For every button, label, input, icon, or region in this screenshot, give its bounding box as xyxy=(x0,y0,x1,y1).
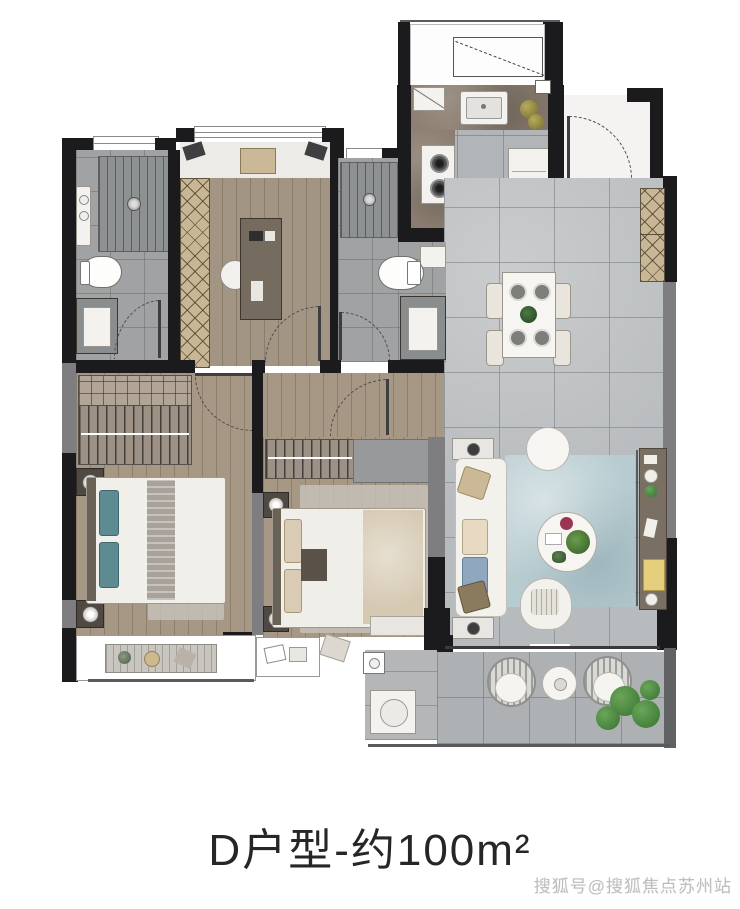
decor-icon xyxy=(645,593,658,606)
wall-segment xyxy=(252,493,263,635)
plate-icon xyxy=(509,283,527,301)
tablet-icon xyxy=(289,647,307,662)
flowers-icon xyxy=(560,517,573,530)
vanity-icon xyxy=(76,298,118,354)
drying-rack-icon xyxy=(453,37,543,77)
sofa-pillow-icon xyxy=(456,465,491,500)
plant-icon xyxy=(552,551,566,563)
decor-icon xyxy=(643,518,658,538)
paper-icon xyxy=(264,644,287,664)
wall-segment xyxy=(428,557,445,610)
laundry-sink-icon xyxy=(370,690,416,734)
window-line xyxy=(195,132,325,133)
round-table-icon xyxy=(542,666,577,701)
shower-drain-icon xyxy=(363,193,376,206)
bay-decor-strip xyxy=(105,644,217,673)
doormat-icon xyxy=(240,148,276,174)
study-door-icon xyxy=(318,306,321,361)
vanity-icon xyxy=(400,296,446,360)
floorplan-page: D户型-约100m² 搜狐号@搜狐焦点苏州站 xyxy=(0,0,740,909)
sliding-door-gap xyxy=(530,644,570,646)
vegetable-basket-icon xyxy=(528,114,544,130)
decor-icon xyxy=(644,469,658,483)
bed-runner-icon xyxy=(147,480,175,600)
pillow-icon xyxy=(99,490,119,536)
wall-segment xyxy=(252,373,263,495)
bathroom2-door-icon xyxy=(339,312,342,360)
books-icon xyxy=(643,559,665,591)
bedroom-door-icon xyxy=(195,373,252,376)
corner-cabinet-icon xyxy=(413,87,445,111)
laptop-icon xyxy=(249,231,263,241)
bay-window-icon xyxy=(256,637,320,677)
nightstand-icon xyxy=(76,600,104,628)
fridge-divider xyxy=(512,171,546,172)
tray-icon xyxy=(545,533,562,545)
centerpiece-icon xyxy=(520,306,537,323)
window-line xyxy=(94,143,158,144)
sink-icon xyxy=(460,91,508,125)
armchair-seat xyxy=(531,589,559,615)
armchair-icon xyxy=(520,578,572,630)
chair-seat xyxy=(495,673,527,703)
wall-segment xyxy=(155,138,176,150)
plant-icon xyxy=(645,485,657,497)
wall-segment xyxy=(62,363,76,453)
basin-icon xyxy=(79,195,89,205)
plate-icon xyxy=(509,329,527,347)
headboard-icon xyxy=(273,509,281,625)
shoe-cabinet-icon xyxy=(640,188,665,282)
balcony-outer-line xyxy=(368,744,670,747)
burner-icon xyxy=(430,154,449,173)
wall-segment xyxy=(650,100,663,180)
round-side-table-icon xyxy=(526,427,570,471)
desk-icon xyxy=(240,218,282,320)
plate-icon xyxy=(533,329,551,347)
pillow-icon xyxy=(99,542,119,588)
toilet-tank xyxy=(407,261,421,285)
faucet-icon xyxy=(481,104,486,109)
bath-counter-icon xyxy=(420,246,446,268)
wardrobe-hangers-icon xyxy=(78,405,192,465)
cabinet-shelf-line xyxy=(641,234,664,235)
plate-icon xyxy=(533,283,551,301)
wall-segment xyxy=(398,22,410,94)
plan-title: D户型-约100m² xyxy=(0,814,740,878)
bed-tray-icon xyxy=(301,549,327,581)
wall-segment xyxy=(62,360,195,373)
toilet-tank xyxy=(80,261,90,285)
sofa-icon xyxy=(455,458,507,617)
tray-icon xyxy=(144,651,160,667)
wall-segment xyxy=(388,360,444,373)
pillow-icon xyxy=(284,569,302,613)
entry-door-icon xyxy=(567,116,570,178)
plants-icon xyxy=(596,706,620,730)
wall-segment xyxy=(428,437,445,563)
shower-drain-icon xyxy=(127,197,141,211)
watermark: 搜狐号@搜狐焦点苏州站 xyxy=(534,872,732,897)
wall-segment xyxy=(397,85,411,230)
rattan-chair-icon xyxy=(487,657,536,707)
basin-icon xyxy=(380,699,408,727)
shower-icon xyxy=(98,156,170,252)
wardrobe-shelf-icon xyxy=(78,375,192,407)
bathroom-window xyxy=(93,136,159,151)
wall-segment xyxy=(62,453,76,603)
wardrobe-icon xyxy=(180,178,210,368)
basin-icon xyxy=(79,211,89,221)
desk-icon xyxy=(370,616,428,636)
symbol-box xyxy=(535,80,551,94)
decor-icon xyxy=(467,443,480,456)
decor-icon xyxy=(467,622,480,635)
bedroom2-door-icon xyxy=(386,379,389,435)
headboard-icon xyxy=(87,478,96,601)
double-bed-icon xyxy=(272,508,426,628)
wall-segment xyxy=(320,360,341,373)
rack-diagonal xyxy=(455,40,544,76)
plants-icon xyxy=(640,680,660,700)
paper-icon xyxy=(265,231,275,241)
wall-segment xyxy=(168,150,180,362)
dining-table-icon xyxy=(502,272,556,358)
wardrobe-hangers-icon xyxy=(265,439,355,479)
sliding-door-track xyxy=(445,646,660,649)
plant-icon xyxy=(118,651,131,664)
cabinet-diagonal xyxy=(413,88,444,108)
shower-icon xyxy=(340,162,398,238)
utility-platform xyxy=(410,24,545,92)
side-table-icon xyxy=(452,438,494,460)
cushion-icon xyxy=(319,634,351,663)
pillow-icon xyxy=(284,519,302,563)
bay-outer-line xyxy=(88,679,254,682)
wall-segment xyxy=(62,138,76,363)
cup-icon xyxy=(554,678,567,691)
side-table-icon xyxy=(452,617,494,639)
wall-segment xyxy=(62,138,95,150)
console-edge-line xyxy=(636,450,638,606)
decor-icon xyxy=(644,455,657,464)
wall-segment xyxy=(252,360,265,373)
plants-icon xyxy=(632,700,660,728)
wardrobe-side-icon xyxy=(353,439,430,483)
coffee-table-icon xyxy=(537,512,597,572)
vanity-sink-icon xyxy=(408,307,438,351)
decor-icon xyxy=(173,647,196,669)
outer-line xyxy=(400,20,560,22)
washbasin-icon xyxy=(76,186,91,246)
blanket-icon xyxy=(363,510,423,624)
double-bed-icon xyxy=(86,477,226,604)
bay-window-icon xyxy=(76,635,256,681)
balcony-rail xyxy=(664,648,676,748)
wall-box-icon xyxy=(363,652,385,674)
window-line xyxy=(195,137,325,138)
bathroom-door-icon xyxy=(158,300,161,358)
toilet-icon xyxy=(82,256,122,288)
wall-segment xyxy=(663,176,677,282)
wall-segment xyxy=(176,128,196,142)
toilet-icon xyxy=(378,256,424,290)
sofa-pillow-icon xyxy=(462,519,488,555)
vanity-sink-icon xyxy=(83,307,111,347)
tv-console-icon xyxy=(639,448,667,610)
paper-icon xyxy=(251,281,263,301)
bowl-plant-icon xyxy=(566,530,590,554)
lamp-icon xyxy=(82,606,99,623)
valve-icon xyxy=(369,658,380,669)
